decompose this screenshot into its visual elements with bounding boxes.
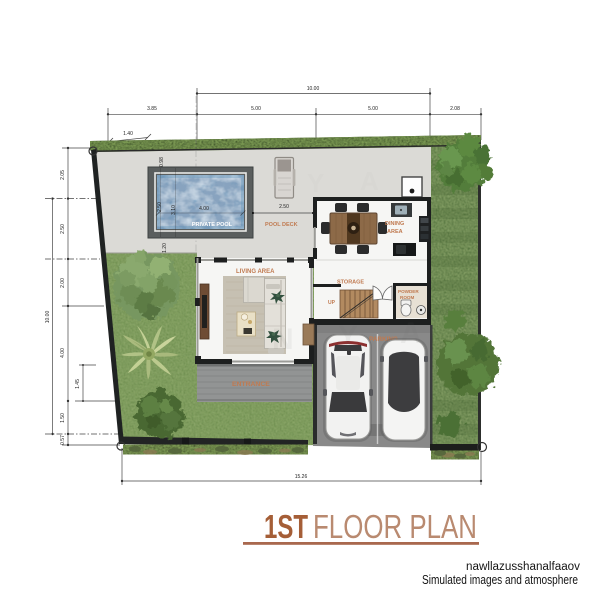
svg-text:15.26: 15.26 [295, 474, 308, 480]
svg-text:2.50: 2.50 [60, 224, 66, 234]
svg-text:PRIVATE POOL: PRIVATE POOL [192, 222, 233, 228]
svg-text:LIVING AREA: LIVING AREA [236, 269, 275, 275]
svg-text:2.05: 2.05 [60, 170, 66, 180]
svg-text:AREA: AREA [387, 229, 403, 235]
svg-text:1.20: 1.20 [162, 243, 168, 253]
svg-text:0.98: 0.98 [159, 157, 165, 167]
svg-text:5.00: 5.00 [368, 106, 378, 112]
svg-text:1.45: 1.45 [75, 379, 81, 389]
svg-text:A: A [360, 166, 379, 196]
svg-text:STORAGE: STORAGE [337, 280, 364, 286]
svg-text:2.50: 2.50 [279, 204, 289, 210]
svg-text:Simulated images and atmospher: Simulated images and atmosphere [422, 573, 578, 587]
svg-text:3.10: 3.10 [171, 205, 177, 215]
svg-text:Y: Y [307, 168, 324, 198]
svg-text:ROOM: ROOM [400, 295, 414, 300]
svg-text:0.57: 0.57 [60, 435, 66, 445]
svg-text:nawllazusshanalfaaov: nawllazusshanalfaaov [466, 561, 580, 573]
svg-text:4.00: 4.00 [199, 206, 209, 212]
svg-text:POWDER: POWDER [398, 289, 419, 294]
svg-text:2.50: 2.50 [157, 202, 163, 212]
svg-text:POOL DECK: POOL DECK [265, 222, 298, 228]
svg-text:4.00: 4.00 [60, 348, 66, 358]
svg-text:10.00: 10.00 [45, 311, 51, 324]
svg-text:2.08: 2.08 [450, 106, 460, 112]
svg-text:FLOOR PLAN: FLOOR PLAN [313, 509, 477, 546]
svg-text:A: A [400, 317, 422, 350]
svg-text:2.00: 2.00 [60, 278, 66, 288]
svg-text:3.85: 3.85 [147, 106, 157, 112]
svg-text:1.50: 1.50 [60, 413, 66, 423]
svg-text:1.40: 1.40 [123, 131, 133, 137]
svg-text:N: N [272, 323, 294, 356]
svg-text:ENTRANCE: ENTRANCE [232, 381, 270, 388]
svg-text:1ST: 1ST [264, 509, 308, 546]
svg-text:Y: Y [338, 320, 358, 353]
svg-text:DINING: DINING [385, 221, 404, 227]
svg-text:10.00: 10.00 [307, 86, 320, 92]
svg-text:UP: UP [328, 300, 336, 306]
svg-text:5.00: 5.00 [251, 106, 261, 112]
